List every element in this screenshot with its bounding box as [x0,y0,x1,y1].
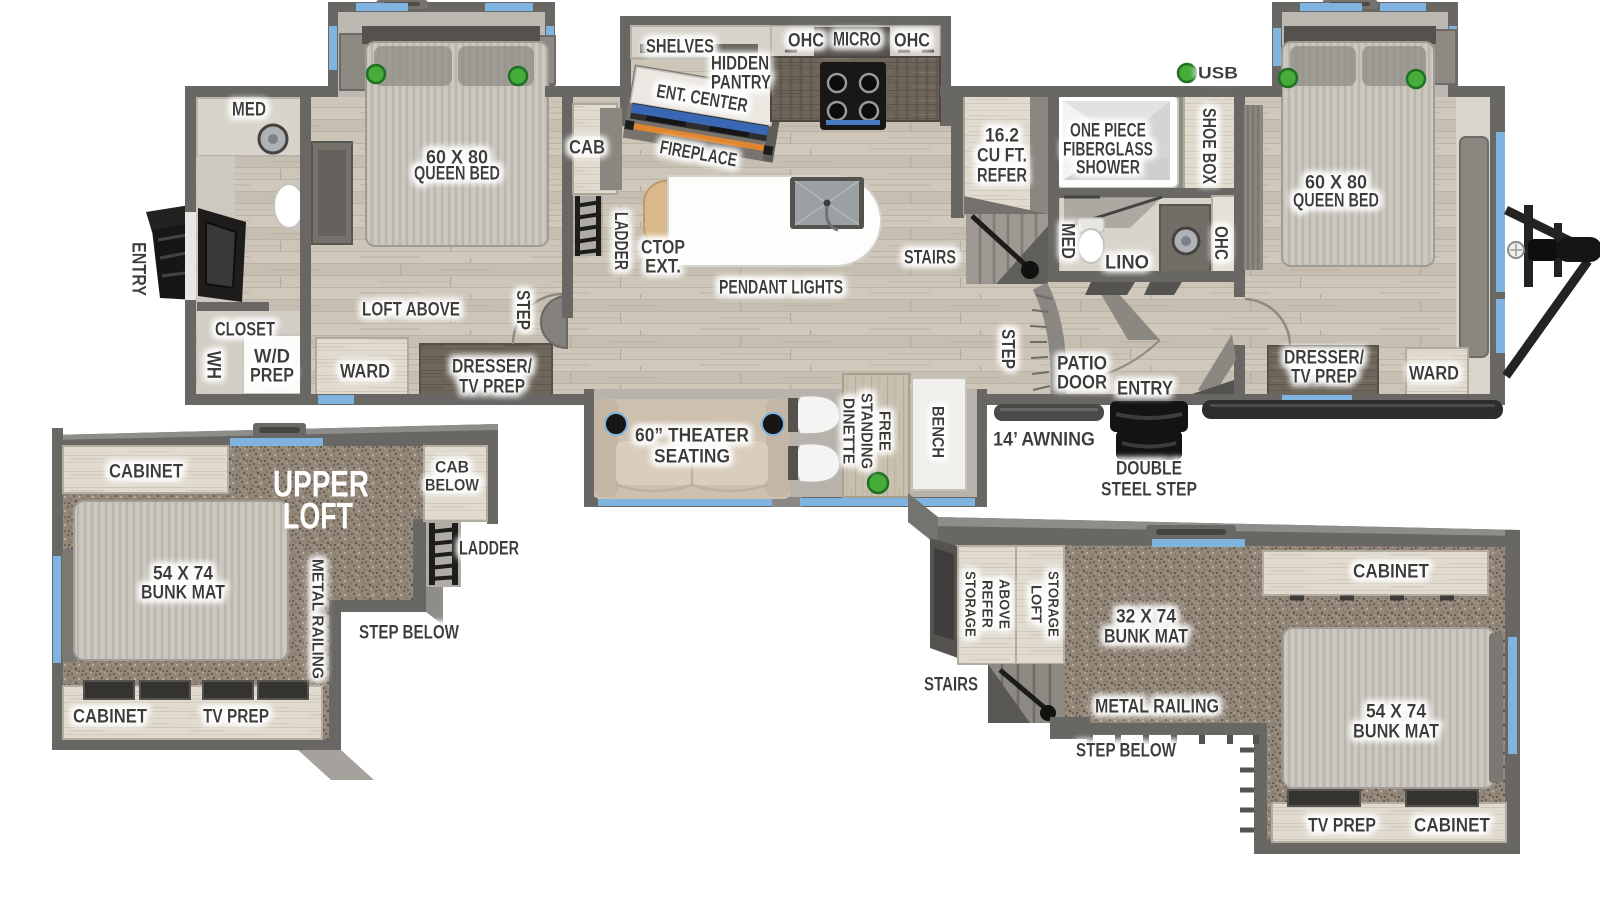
svg-text:ONE PIECE: ONE PIECE [1070,121,1146,142]
svg-text:16.2: 16.2 [985,126,1019,147]
svg-text:OHC: OHC [894,31,930,52]
svg-text:PENDANT LIGHTS: PENDANT LIGHTS [719,278,843,299]
svg-text:STAIRS: STAIRS [904,248,956,269]
svg-text:ENTRY: ENTRY [128,242,149,296]
svg-text:WARD: WARD [340,362,390,383]
svg-text:STANDING: STANDING [858,393,875,469]
svg-text:LADDER: LADDER [611,212,631,270]
svg-text:CABINET: CABINET [1353,562,1429,583]
svg-text:TV PREP: TV PREP [1308,816,1376,837]
svg-text:CAB: CAB [435,458,469,477]
svg-text:SHELVES: SHELVES [646,37,714,58]
svg-text:PATIO: PATIO [1057,354,1107,375]
svg-text:REFER: REFER [977,166,1027,187]
svg-text:PANTRY: PANTRY [711,73,771,94]
svg-text:SHOWER: SHOWER [1076,158,1140,179]
svg-text:QUEEN BED: QUEEN BED [414,164,500,185]
svg-text:OHC: OHC [1211,226,1231,260]
svg-text:METAL RAILING: METAL RAILING [309,559,326,679]
svg-text:SEATING: SEATING [654,447,730,468]
svg-text:STEP BELOW: STEP BELOW [1076,741,1176,762]
svg-text:ABOVE: ABOVE [996,579,1013,629]
svg-text:LOFT: LOFT [1028,585,1045,623]
svg-text:CLOSET: CLOSET [215,320,275,341]
svg-text:DOOR: DOOR [1057,373,1107,394]
svg-text:STEEL STEP: STEEL STEP [1101,480,1197,501]
svg-text:54 X 74: 54 X 74 [1366,702,1426,723]
svg-text:SHOE BOX: SHOE BOX [1199,108,1219,184]
svg-text:DRESSER/: DRESSER/ [452,357,533,378]
svg-text:32 X 74: 32 X 74 [1116,607,1176,628]
svg-text:14’ AWNING: 14’ AWNING [993,430,1095,451]
svg-text:TV PREP: TV PREP [203,707,269,728]
svg-text:DOUBLE: DOUBLE [1116,459,1182,480]
svg-text:REFER: REFER [979,580,996,628]
svg-text:MED: MED [232,100,266,121]
svg-text:QUEEN BED: QUEEN BED [1293,191,1379,212]
svg-text:STORAGE: STORAGE [1045,571,1062,637]
svg-text:TV PREP: TV PREP [1291,367,1357,388]
svg-text:CABINET: CABINET [73,707,147,728]
svg-text:OHC: OHC [788,31,824,52]
svg-text:METAL RAILING: METAL RAILING [1095,697,1219,718]
svg-text:CU FT.: CU FT. [977,146,1027,167]
svg-text:ENTRY: ENTRY [1117,379,1173,400]
svg-text:BUNK MAT: BUNK MAT [1353,722,1439,743]
svg-text:60” THEATER: 60” THEATER [635,426,749,447]
svg-text:WH: WH [203,351,224,379]
svg-text:TV PREP: TV PREP [459,377,525,398]
svg-text:CABINET: CABINET [1414,816,1490,837]
svg-text:LOFT: LOFT [283,496,353,537]
svg-text:BELOW: BELOW [425,476,480,495]
svg-text:USB: USB [1198,64,1238,83]
svg-text:BUNK MAT: BUNK MAT [1104,627,1188,648]
svg-text:FREE: FREE [876,411,893,451]
svg-text:CABINET: CABINET [109,462,183,483]
svg-text:MED: MED [1058,223,1078,259]
svg-text:PREP: PREP [250,366,294,387]
svg-text:BENCH: BENCH [929,406,948,458]
svg-text:EXT.: EXT. [645,257,681,278]
svg-text:LOFT ABOVE: LOFT ABOVE [362,300,460,321]
svg-text:STEP: STEP [998,329,1018,369]
svg-text:STEP BELOW: STEP BELOW [359,623,459,644]
svg-text:STORAGE: STORAGE [962,571,979,637]
svg-text:CTOP: CTOP [641,238,685,259]
svg-text:MICRO: MICRO [833,30,881,51]
svg-text:CAB: CAB [569,138,605,159]
svg-text:DRESSER/: DRESSER/ [1284,348,1365,369]
svg-text:W/D: W/D [254,347,290,368]
svg-text:54 X 74: 54 X 74 [153,564,213,585]
svg-text:BUNK MAT: BUNK MAT [141,583,225,604]
svg-text:HIDDEN: HIDDEN [711,54,769,75]
svg-text:LINO: LINO [1105,253,1149,274]
svg-text:STEP: STEP [513,290,533,330]
svg-text:STAIRS: STAIRS [924,675,978,696]
svg-text:DINETTE: DINETTE [840,398,857,464]
svg-text:WARD: WARD [1409,364,1459,385]
svg-text:LADDER: LADDER [459,539,519,560]
